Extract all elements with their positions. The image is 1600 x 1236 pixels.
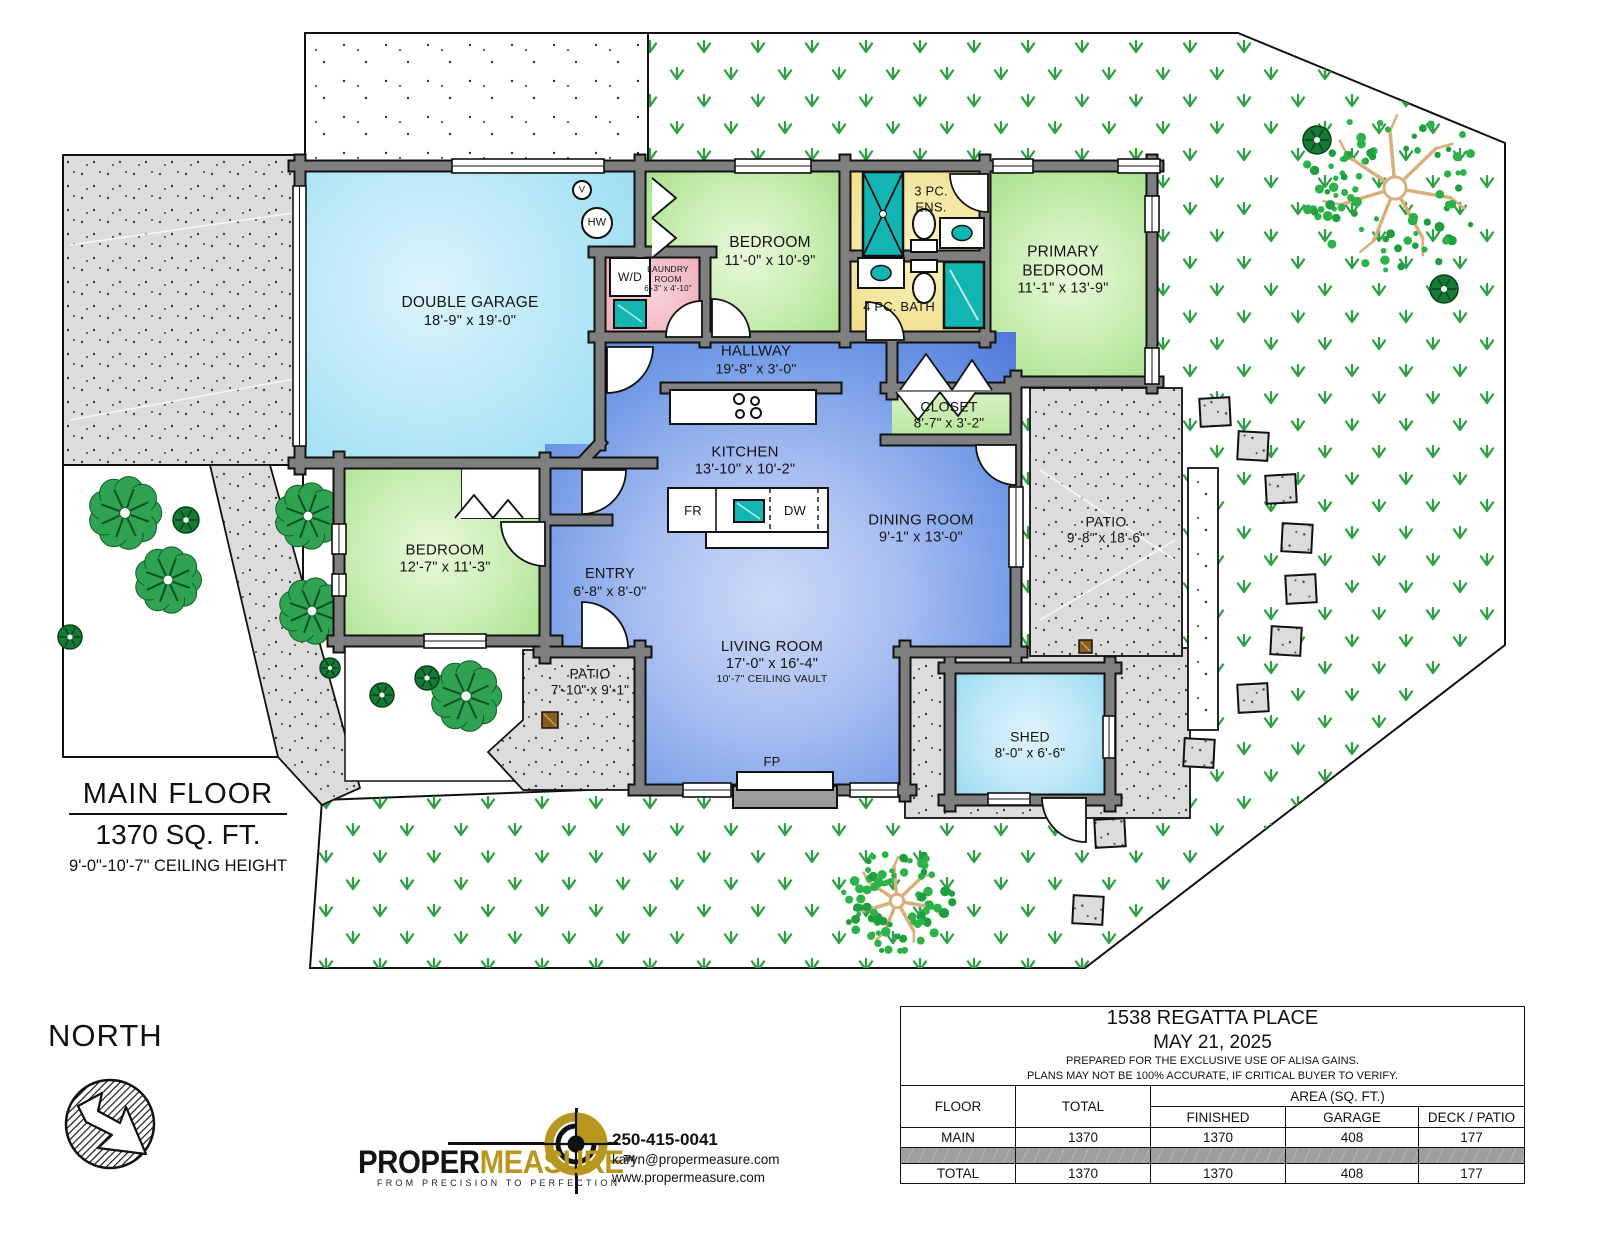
floor-title-block: MAIN FLOOR 1370 SQ. FT. 9'-0"-10'-7" CEI… [69,778,287,876]
floor-area: 1370 SQ. FT. [69,819,287,851]
label-entry: ENTRY6'-8" x 8'-0" [573,566,646,600]
phone-number: 250-415-0041 [612,1130,718,1150]
label-living-room: LIVING ROOM17'-0" x 16'-4"10'-7" CEILING… [717,638,828,686]
bedroom-left-closet-niche [462,466,552,518]
floor-plan-page: DOUBLE GARAGE18'-9" x 19'-0" LAUNDRYROOM… [0,0,1600,1236]
label-patio-front: PATIO7'-10" x 9'-1" [551,666,629,699]
label-hallway: HALLWAY19'-8" x 3'-0" [715,343,796,378]
label-closet: CLOSET8'-7" x 3'-2" [914,399,985,432]
label-fireplace: FP [763,754,780,770]
summary-table: 1538 REGATTA PLACE MAY 21, 2025 PREPARED… [900,1006,1524,1184]
ceiling-height: 9'-0"-10'-7" CEILING HEIGHT [69,857,287,876]
label-bedroom-top: BEDROOM11'-0" x 10'-9" [724,234,815,270]
table-row-main: MAIN 1370 1370 408 177 [901,1128,1525,1148]
table-date: MAY 21, 2025 [901,1032,1524,1055]
table-row-total: TOTAL 1370 1370 408 177 [901,1164,1525,1184]
label-double-garage: DOUBLE GARAGE18'-9" x 19'-0" [402,294,539,330]
col-header-garage: GARAGE [1286,1107,1419,1128]
label-fridge: FR [684,503,702,519]
col-header-total: TOTAL [1016,1086,1151,1128]
website-url: www.propermeasure.com [612,1170,765,1185]
label-ensuite: 3 PC.ENS. [914,183,948,214]
north-arrow-icon [62,1076,162,1176]
email-address: karyn@propermeasure.com [612,1152,780,1167]
logo-tagline: FROM PRECISION TO PERFECTION [377,1178,620,1188]
col-header-deck: DECK / PATIO [1419,1107,1525,1128]
label-laundry: LAUNDRYROOM6'-3" x 4'-10" [644,264,692,294]
table-note-1: PREPARED FOR THE EXCLUSIVE USE OF ALISA … [901,1055,1524,1070]
north-label: NORTH [48,1018,163,1054]
label-primary-bedroom: PRIMARYBEDROOM11'-1" x 13'-9" [1017,244,1108,299]
label-dishwasher: DW [784,503,806,519]
table-row-divider [901,1148,1525,1164]
label-hot-water: HW [588,216,607,229]
table-note-2: PLANS MAY NOT BE 100% ACCURATE, IF CRITI… [901,1070,1524,1085]
label-vent: V [579,184,586,195]
label-patio-back: PATIO9'-8" x 18'-6" [1067,514,1145,547]
col-header-finished: FINISHED [1151,1107,1286,1128]
label-main-bath: 4 PC. BATH [863,299,935,315]
table-address: 1538 REGATTA PLACE [901,1007,1524,1032]
col-header-floor: FLOOR [901,1086,1016,1128]
label-washer-dryer: W/D [618,270,642,284]
label-bedroom-left: BEDROOM12'-7" x 11'-3" [399,541,490,576]
floor-title: MAIN FLOOR [69,778,287,815]
label-shed: SHED8'-0" x 6'-6" [995,729,1066,762]
label-dining-room: DINING ROOM9'-1" x 13'-0" [868,511,974,546]
col-header-area: AREA (SQ. FT.) [1151,1086,1525,1107]
label-kitchen: KITCHEN13'-10" x 10'-2" [695,443,795,478]
propermeasure-wordmark: PROPERMEASURETM [358,1144,635,1181]
